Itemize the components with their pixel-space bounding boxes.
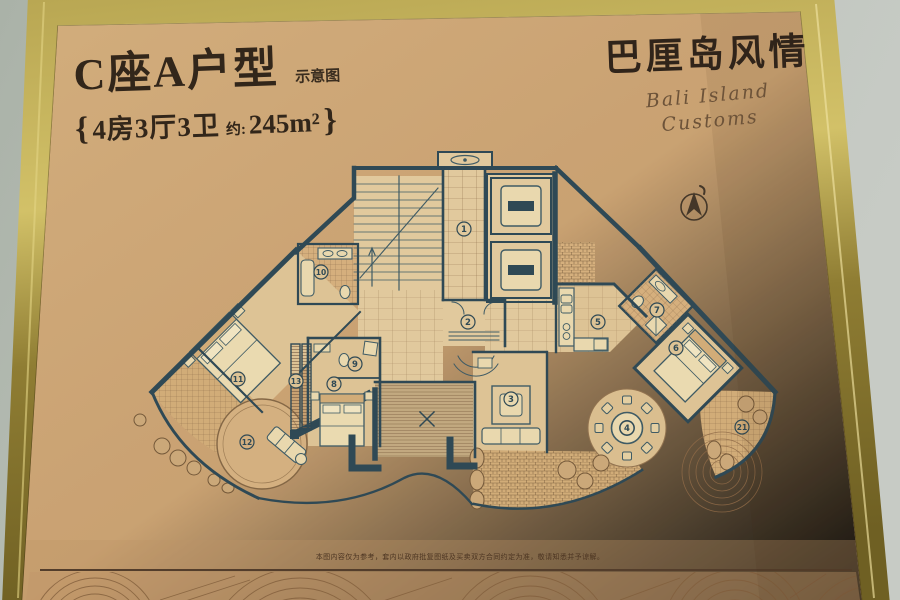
spec-approx-label: 约: (226, 118, 247, 140)
spec-area: 245m² (248, 107, 320, 140)
spec-brace-open: { (75, 111, 89, 148)
brand-block: 巴厘岛风情 Bali Island Customs (590, 20, 826, 137)
spec-rooms: 4房3厅3卫 (92, 104, 221, 147)
spec-brace-close: } (323, 103, 337, 140)
unit-title-suffix: 示意图 (295, 64, 341, 87)
disclaimer-text: 本图内容仅为参考，套内以政府批复图纸及买卖双方合同约定为准，敬请知悉并予谅解。 (280, 552, 640, 562)
unit-title: C座A户型 (72, 32, 280, 103)
unit-title-block: C座A户型 示意图 { 4房3厅3卫 约: 245m² } (72, 29, 342, 148)
brand-title: 巴厘岛风情 (590, 20, 824, 82)
photo-scene: 1 2 3 4 5 6 7 8 9 10 11 12 13 21 (0, 0, 900, 600)
